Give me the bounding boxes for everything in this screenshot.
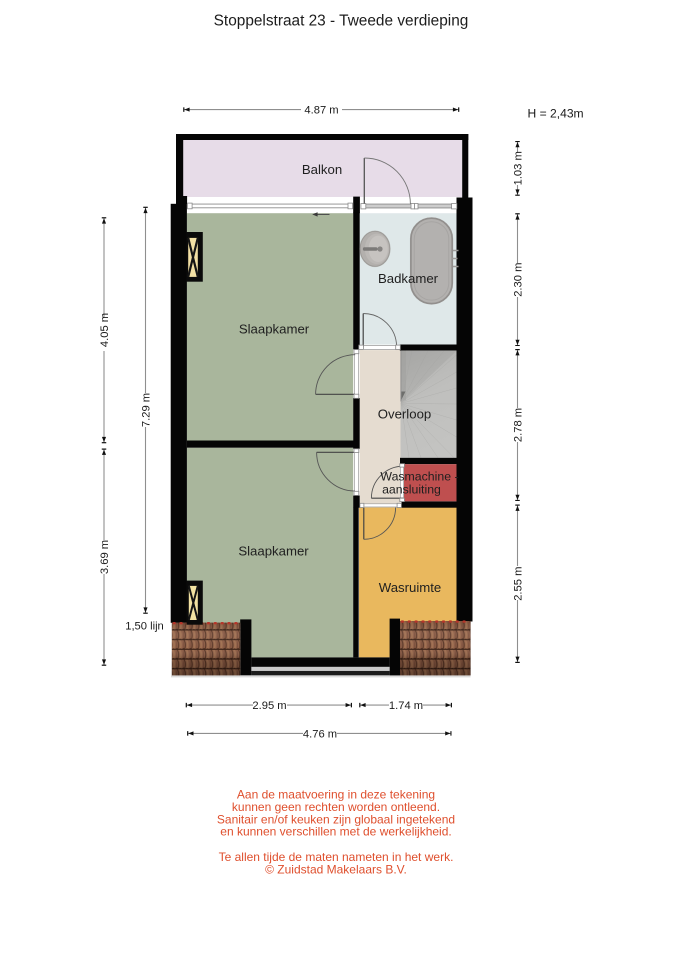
svg-text:2.30 m: 2.30 m — [513, 263, 525, 297]
svg-text:Balkon: Balkon — [302, 162, 342, 177]
svg-text:2.55 m: 2.55 m — [513, 567, 525, 601]
svg-text:1.74 m: 1.74 m — [389, 700, 423, 712]
svg-text:7.29 m: 7.29 m — [141, 393, 153, 427]
svg-text:1.03 m: 1.03 m — [513, 151, 525, 185]
svg-text:Wasruimte: Wasruimte — [379, 580, 442, 595]
svg-text:Slaapkamer: Slaapkamer — [238, 544, 309, 559]
svg-text:en kunnen verschillen met de w: en kunnen verschillen met de werkelijkhe… — [220, 825, 451, 839]
svg-text:3.69 m: 3.69 m — [99, 540, 111, 574]
svg-text:4.87 m: 4.87 m — [304, 105, 338, 117]
svg-text:2.95 m: 2.95 m — [252, 700, 286, 712]
svg-text:© Zuidstad Makelaars B.V.: © Zuidstad Makelaars B.V. — [265, 863, 407, 877]
svg-text:Stoppelstraat 23 - Tweede verd: Stoppelstraat 23 - Tweede verdieping — [214, 13, 469, 30]
svg-text:4.05 m: 4.05 m — [99, 313, 111, 347]
svg-text:Badkamer: Badkamer — [378, 271, 439, 286]
svg-text:4.76 m: 4.76 m — [303, 728, 337, 740]
svg-text:1,50 lijn: 1,50 lijn — [125, 621, 164, 633]
svg-text:Overloop: Overloop — [378, 407, 432, 422]
svg-text:Slaapkamer: Slaapkamer — [239, 322, 310, 337]
svg-text:Wasmachine -: Wasmachine - — [380, 470, 458, 484]
svg-text:2.78 m: 2.78 m — [513, 408, 525, 442]
svg-text:aansluiting: aansluiting — [382, 483, 441, 497]
svg-text:H = 2,43m: H = 2,43m — [528, 107, 584, 121]
